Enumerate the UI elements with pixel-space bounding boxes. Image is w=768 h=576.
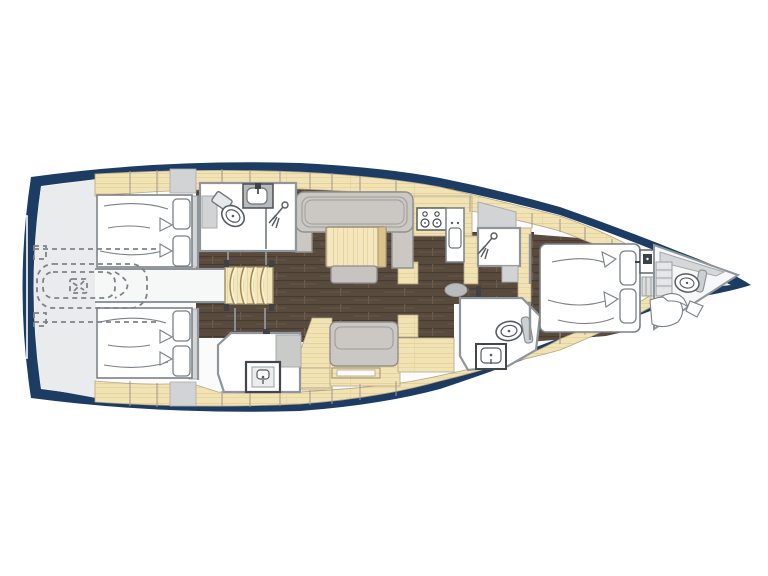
double-berth — [540, 244, 640, 332]
pillow — [173, 199, 190, 229]
aft-cabin-port — [97, 195, 198, 267]
yacht-floor-plan-canvas — [0, 0, 768, 576]
double-berth — [97, 308, 192, 378]
washbasin-icon — [246, 362, 280, 392]
ottoman — [331, 266, 377, 283]
aft-head-starboard — [218, 333, 301, 392]
double-berth — [97, 195, 192, 267]
pillow — [620, 251, 636, 285]
floor-mat — [445, 284, 467, 297]
washbasin-icon — [476, 344, 506, 369]
sink-basin-icon — [449, 228, 461, 248]
pillow — [173, 236, 190, 266]
forward-head-starboard — [460, 298, 540, 370]
cabinet-strip — [464, 236, 478, 284]
galley-counter — [446, 208, 464, 262]
salon-table — [326, 227, 386, 267]
locker — [502, 266, 518, 282]
salon-cabinet — [398, 315, 418, 337]
cabinet-stbd-fwd — [398, 338, 454, 372]
pillow — [173, 311, 190, 341]
stove-burners-icon — [417, 208, 447, 230]
settee-shelf — [332, 368, 380, 378]
wardrobe-gray-segment — [170, 382, 196, 406]
pillow — [173, 346, 190, 376]
aft-head-port — [200, 183, 296, 251]
washbasin-icon — [243, 183, 273, 208]
owner-cabin — [530, 234, 656, 340]
steps-icon — [656, 262, 672, 296]
aft-cabin-starboard — [97, 308, 198, 379]
pillow — [620, 289, 636, 323]
yacht-floor-plan — [0, 0, 768, 576]
companionway-stairs — [225, 267, 273, 304]
wardrobe-gray-segment — [170, 169, 196, 193]
stern-aisle — [95, 269, 226, 302]
